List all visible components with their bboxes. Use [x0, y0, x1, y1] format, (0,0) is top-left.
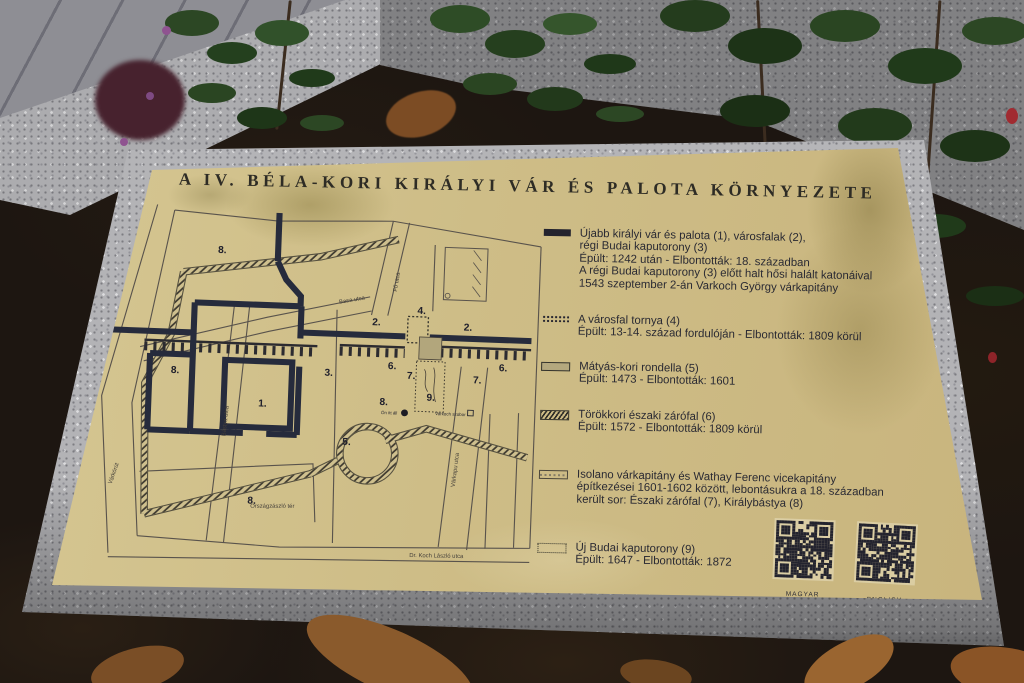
dotted-rect-symbol [537, 543, 566, 554]
legend-entry-5: Isolano várkapitány és Wathay Ferenc vic… [538, 468, 947, 513]
legend-entry-4: Törökkori északi zárófal (6) Épült: 1572… [540, 408, 948, 441]
qr-pattern [856, 523, 916, 583]
legend-text: Újabb királyi vár és palota (1), városfa… [579, 228, 873, 296]
map-number-8a: 8. [218, 245, 227, 256]
map-number-6a: 6. [388, 361, 397, 372]
legend: Újabb királyi vár és palota (1), városfa… [544, 227, 952, 235]
map-label-varkapu-utca: Várkapu utca [451, 452, 461, 488]
photo-scene: A IV. BÉLA-KORI KIRÁLYI VÁR ÉS PALOTA KÖ… [0, 0, 1024, 683]
plant-foliage [660, 0, 730, 32]
dry-leaf [618, 655, 693, 683]
statue-label: Varkoch szobor [435, 411, 466, 417]
plaque-title: A IV. BÉLA-KORI KIRÁLYI VÁR ÉS PALOTA KÖ… [179, 170, 919, 205]
map-label-fo-utca: Fő utca [393, 271, 402, 292]
map-number-9: 9. [426, 393, 435, 404]
qr-code-magyar [772, 518, 835, 581]
red-flower [988, 352, 997, 363]
map-number-2a: 2. [372, 317, 381, 328]
hatched-bar-symbol [540, 410, 569, 421]
map-label-basa-utca: Basa utca [339, 295, 367, 305]
plant-foliage [430, 5, 490, 33]
legend-line: Épült: 1647 - Elbontották: 1872 [575, 554, 732, 570]
you-are-here-dot [401, 409, 408, 416]
map-number-8c: 8. [247, 496, 256, 507]
legend-text: Mátyás-kori rondella (5) Épült: 1473 - E… [579, 361, 736, 389]
map-number-2b: 2. [463, 323, 472, 334]
purple-flower [120, 138, 128, 146]
map-gate-9 [415, 361, 445, 412]
map-number-3: 3. [324, 368, 333, 379]
map-number-8b: 8. [171, 365, 180, 376]
dotted-line-symbol [542, 315, 569, 323]
plant-foliage [165, 10, 219, 36]
legend-text: Törökkori északi zárófal (6) Épült: 1572… [578, 409, 763, 438]
map-number-5: 5. [342, 437, 351, 448]
legend-text: Új Budai kaputorony (9) Épült: 1647 - El… [575, 542, 732, 570]
legend-text: Isolano várkapitány és Wathay Ferenc vic… [576, 469, 884, 512]
legend-entry-3: Mátyás-kori rondella (5) Épült: 1473 - E… [541, 360, 949, 393]
map-number-7b: 7. [473, 375, 482, 386]
map-number-7a: 7. [407, 371, 416, 382]
dry-leaf [380, 82, 462, 146]
map-label-varkorut: Várkörút [108, 462, 121, 485]
map-number-1: 1. [258, 398, 267, 409]
red-flower [1006, 108, 1018, 124]
map-number-6b: 6. [499, 363, 508, 374]
map-label-koch-laszlo-utca: Dr. Koch László utca [409, 553, 464, 560]
legend-entry-2: A városfal tornya (4) Épült: 13-14. száz… [542, 313, 950, 346]
solid-bar-symbol [544, 229, 571, 237]
dashed-rect-symbol [539, 470, 568, 480]
red-foliage [95, 60, 185, 140]
purple-flower [146, 92, 154, 100]
site-map: Basa utca Fő utca Bástya utca Várkörút V… [75, 202, 546, 581]
purple-flower [162, 26, 171, 35]
statue-marker [468, 410, 474, 416]
legend-entry-1: Újabb királyi vár és palota (1), városfa… [543, 227, 952, 297]
legend-line: Épült: 1572 - Elbontották: 1809 körül [578, 421, 762, 437]
qr-code-english [854, 521, 918, 585]
map-label-orszagzaszlo-ter: Országzászló tér [250, 504, 294, 510]
legend-text: A városfal tornya (4) Épült: 13-14. száz… [578, 314, 862, 345]
map-markers: Ön itt áll Varkoch szobor [381, 407, 473, 419]
dry-leaf [86, 637, 188, 683]
qr-pattern [774, 520, 833, 579]
map-number-4: 4. [417, 306, 426, 317]
outlined-rect-symbol [541, 362, 570, 372]
map-zone-7 [419, 337, 442, 360]
legend-line: Épült: 1473 - Elbontották: 1601 [579, 373, 736, 389]
map-number-8d: 8. [379, 397, 388, 408]
you-are-here-label: Ön itt áll [381, 409, 398, 416]
